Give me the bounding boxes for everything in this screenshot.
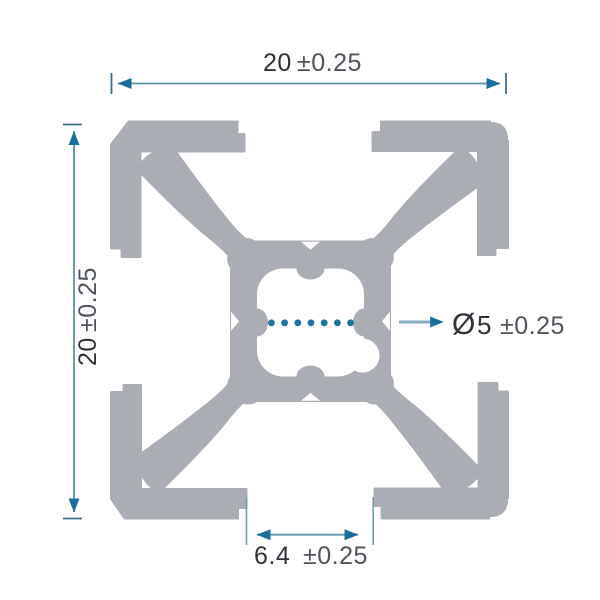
svg-text:±0.25: ±0.25 (303, 542, 368, 570)
svg-text:6.4: 6.4 (254, 542, 290, 570)
svg-text:±0.25: ±0.25 (297, 49, 362, 77)
svg-text:20: 20 (263, 49, 292, 77)
svg-text:±0.25: ±0.25 (500, 312, 565, 340)
svg-text:±0.25: ±0.25 (74, 267, 102, 332)
svg-text:5: 5 (477, 310, 491, 340)
svg-text:20: 20 (74, 337, 102, 366)
svg-text:Ø: Ø (452, 308, 475, 341)
